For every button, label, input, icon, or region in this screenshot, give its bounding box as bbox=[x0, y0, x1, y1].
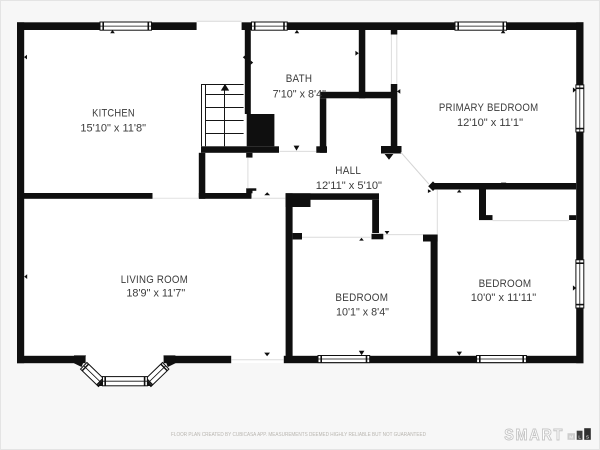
svg-text:7'10" x 8'4": 7'10" x 8'4" bbox=[273, 89, 326, 101]
svg-text:LIVING ROOM: LIVING ROOM bbox=[121, 274, 188, 286]
svg-text:12'10" x 11'1": 12'10" x 11'1" bbox=[457, 117, 523, 129]
svg-text:M: M bbox=[569, 435, 573, 440]
svg-text:SMART: SMART bbox=[504, 427, 564, 444]
svg-text:HALL: HALL bbox=[335, 165, 361, 177]
svg-text:BEDROOM: BEDROOM bbox=[335, 292, 388, 304]
svg-text:10'0" x 11'11": 10'0" x 11'11" bbox=[471, 292, 537, 304]
svg-text:10'1" x 8'4": 10'1" x 8'4" bbox=[336, 307, 389, 319]
svg-text:PRIMARY BEDROOM: PRIMARY BEDROOM bbox=[439, 102, 539, 114]
svg-text:12'11" x 5'10": 12'11" x 5'10" bbox=[316, 180, 382, 192]
svg-text:18'9" x 11'7": 18'9" x 11'7" bbox=[126, 288, 185, 300]
svg-text:KITCHEN: KITCHEN bbox=[92, 108, 135, 120]
svg-text:FLOOR PLAN CREATED BY CUBICASA: FLOOR PLAN CREATED BY CUBICASA APP. MEAS… bbox=[171, 432, 426, 438]
svg-text:S: S bbox=[586, 435, 589, 440]
svg-text:15'10" x 11'8": 15'10" x 11'8" bbox=[80, 122, 146, 134]
svg-text:BATH: BATH bbox=[286, 73, 313, 85]
svg-text:BEDROOM: BEDROOM bbox=[479, 278, 532, 290]
